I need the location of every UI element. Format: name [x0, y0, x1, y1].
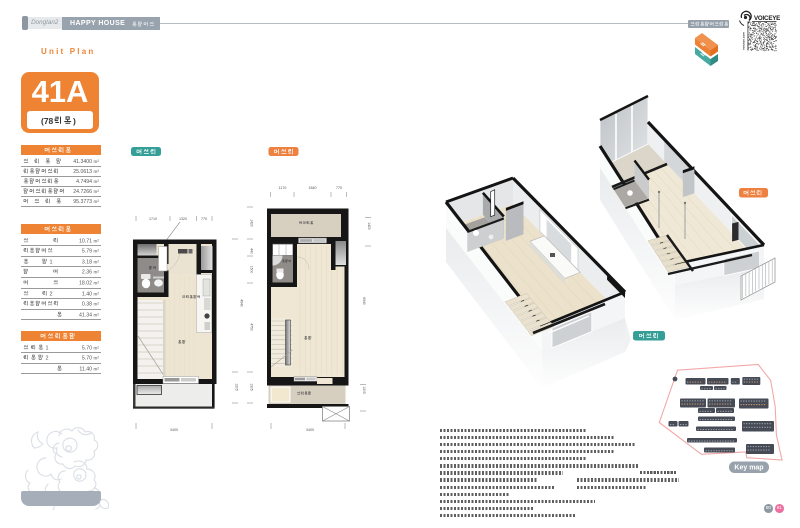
svg-text:voiceye.com: voiceye.com [742, 32, 746, 50]
svg-text:Key map: Key map [734, 465, 763, 472]
svg-text:3400: 3400 [170, 428, 178, 432]
svg-text:5.70: 5.70 [82, 356, 92, 362]
svg-text:11.40: 11.40 [79, 366, 92, 372]
svg-text:1710: 1710 [149, 217, 157, 221]
svg-text:1305: 1305 [235, 383, 239, 391]
svg-text:3400: 3400 [306, 428, 314, 432]
svg-text:5.70: 5.70 [82, 345, 92, 351]
svg-text:10.71: 10.71 [79, 238, 92, 244]
svg-text:(78: (78 [41, 116, 54, 126]
svg-text:m²: m² [94, 199, 100, 204]
svg-text:m²: m² [94, 291, 100, 296]
svg-text:m²: m² [94, 281, 100, 286]
svg-text:1305: 1305 [362, 386, 366, 394]
svg-text:m²: m² [94, 312, 100, 317]
svg-text:6940: 6940 [362, 297, 366, 305]
svg-text:0.38: 0.38 [82, 302, 92, 308]
svg-text:41.34: 41.34 [79, 312, 92, 318]
svg-text:VOICEYE: VOICEYE [754, 15, 780, 22]
svg-text:4940: 4940 [240, 299, 244, 307]
svg-text:41.3400: 41.3400 [73, 159, 92, 165]
svg-text:m²: m² [94, 345, 100, 350]
svg-text:1500: 1500 [250, 266, 254, 274]
svg-text:1420: 1420 [367, 222, 371, 230]
svg-text:440: 440 [250, 248, 254, 254]
svg-text:95.3773: 95.3773 [73, 199, 92, 205]
svg-text:770: 770 [336, 186, 342, 190]
svg-text:1.40: 1.40 [82, 291, 92, 297]
svg-text:m²: m² [94, 302, 100, 307]
svg-text:m²: m² [94, 189, 100, 194]
svg-text:m²: m² [94, 259, 100, 264]
svg-text:4750: 4750 [250, 323, 254, 331]
svg-text:m²: m² [94, 159, 100, 164]
svg-text:2.36: 2.36 [82, 270, 92, 276]
svg-text:2: 2 [50, 291, 53, 297]
svg-text:m²: m² [94, 179, 100, 184]
svg-text:1420: 1420 [250, 219, 254, 227]
svg-text:2: 2 [46, 356, 49, 362]
svg-text:18.02: 18.02 [79, 281, 92, 287]
svg-text:1: 1 [50, 259, 53, 265]
svg-text:1840: 1840 [309, 186, 317, 190]
svg-text:m²: m² [94, 366, 100, 371]
svg-text:5.79: 5.79 [82, 249, 92, 255]
svg-text:1305: 1305 [250, 383, 254, 391]
svg-text:m²: m² [94, 249, 100, 254]
svg-text:3.18: 3.18 [82, 259, 92, 265]
svg-text:1170: 1170 [279, 186, 287, 190]
svg-text:m²: m² [94, 169, 100, 174]
svg-text:770: 770 [201, 217, 207, 221]
svg-text:m²: m² [94, 270, 100, 275]
svg-text:25.0613: 25.0613 [73, 169, 92, 175]
svg-text:1: 1 [46, 345, 49, 351]
svg-text:1320: 1320 [179, 217, 187, 221]
svg-text:m²: m² [94, 356, 100, 361]
svg-text:24.7266: 24.7266 [73, 189, 92, 195]
svg-text:4.7494: 4.7494 [76, 179, 92, 185]
svg-text:m²: m² [94, 238, 100, 243]
svg-text:): ) [73, 116, 76, 126]
